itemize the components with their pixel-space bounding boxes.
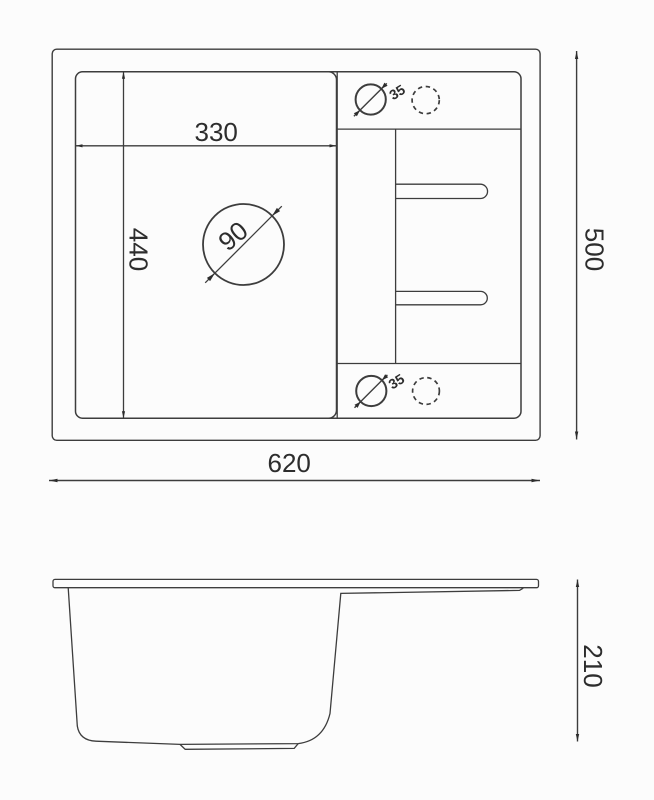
svg-text:90: 90 <box>212 215 253 257</box>
svg-text:35: 35 <box>386 81 408 103</box>
svg-text:620: 620 <box>268 448 311 478</box>
svg-text:210: 210 <box>578 644 608 687</box>
svg-text:500: 500 <box>579 228 609 271</box>
svg-text:440: 440 <box>124 228 154 271</box>
svg-text:330: 330 <box>195 117 238 147</box>
svg-text:35: 35 <box>386 370 408 392</box>
